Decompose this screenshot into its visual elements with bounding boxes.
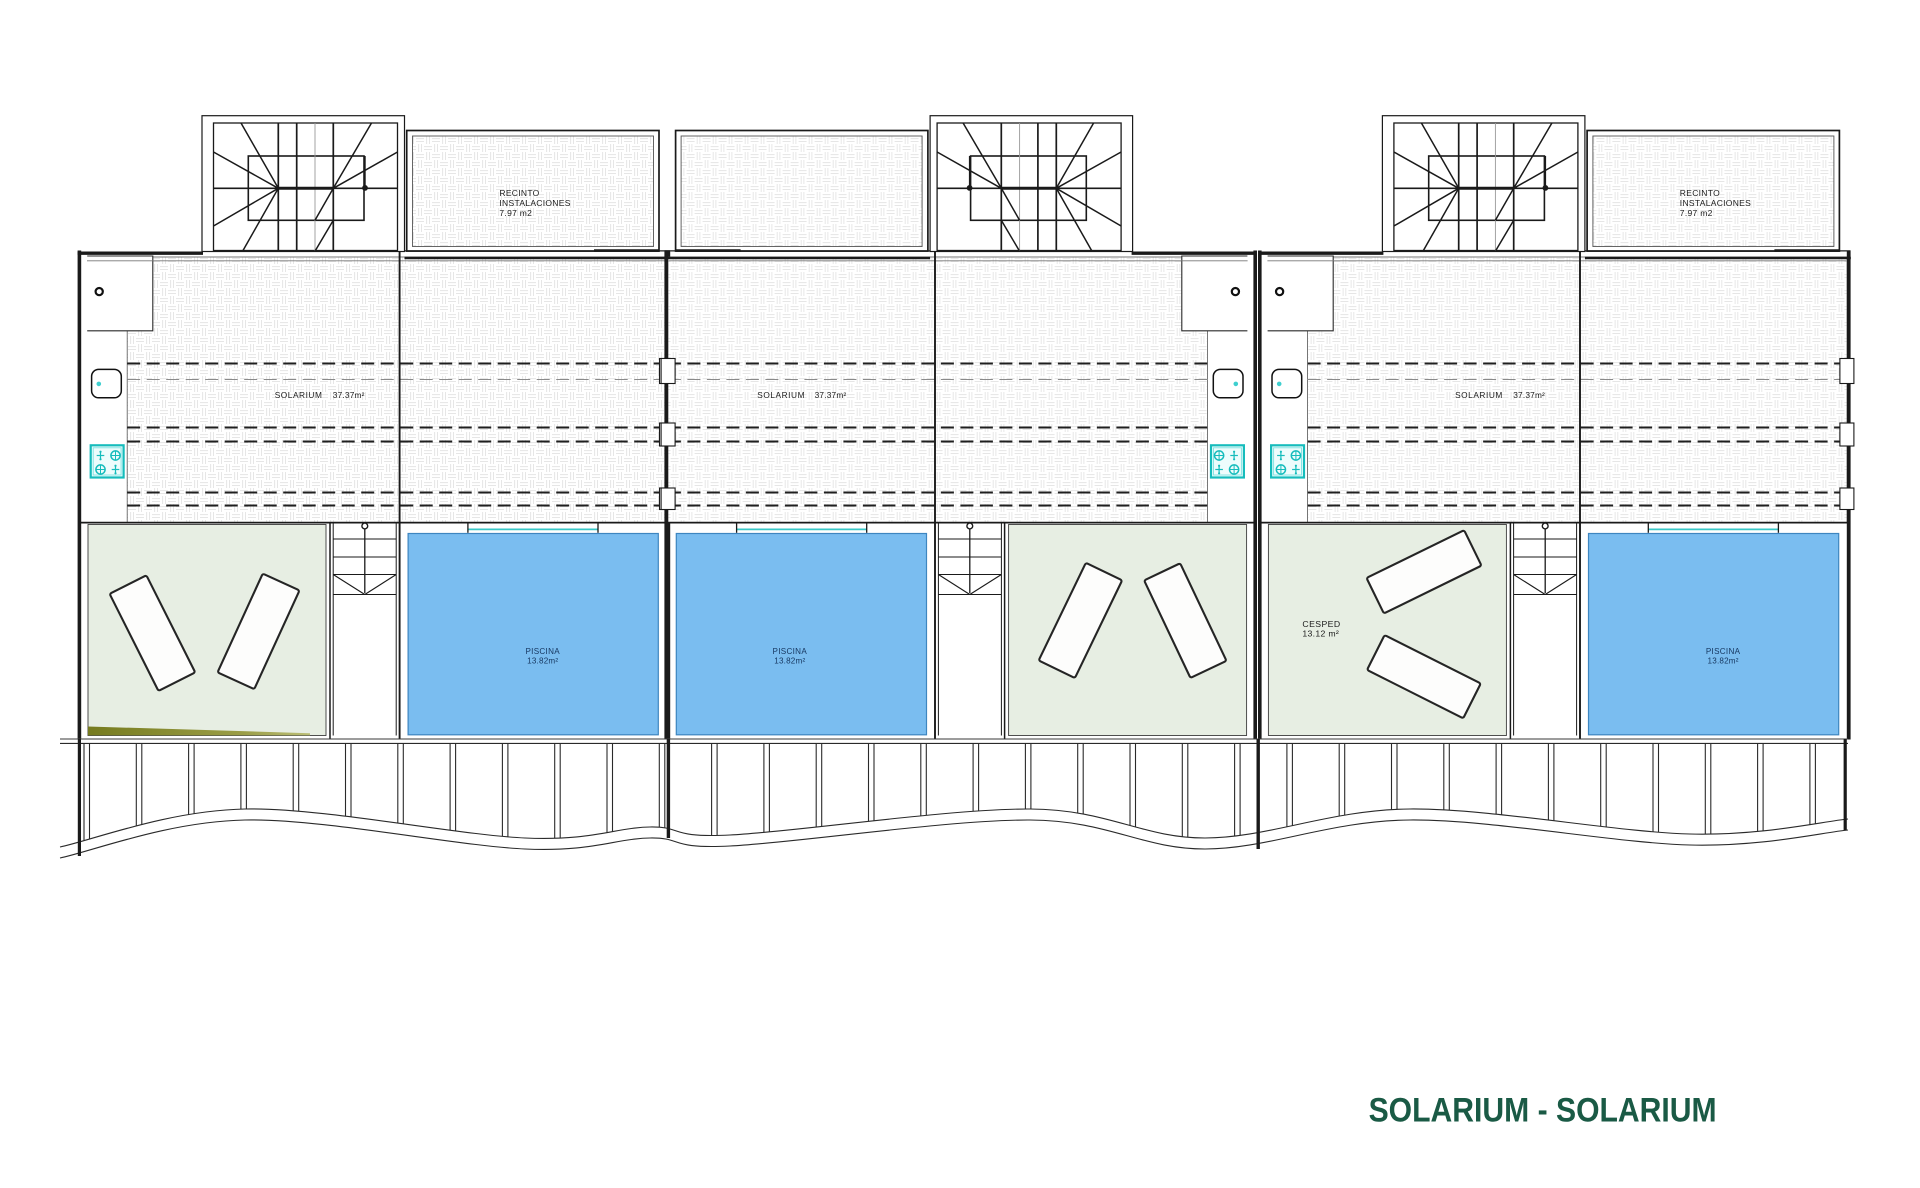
svg-text:SOLARIUM - SOLARIUM: SOLARIUM - SOLARIUM <box>1369 1092 1717 1130</box>
svg-text:13.82m²: 13.82m² <box>1708 656 1739 665</box>
svg-text:37.37m²: 37.37m² <box>815 390 847 400</box>
svg-text:7.97 m2: 7.97 m2 <box>499 208 532 218</box>
svg-text:13.12 m²: 13.12 m² <box>1302 629 1339 639</box>
svg-text:13.82m²: 13.82m² <box>527 656 558 665</box>
svg-text:PISCINA: PISCINA <box>1706 647 1741 656</box>
svg-text:PISCINA: PISCINA <box>773 647 808 656</box>
svg-text:RECINTO: RECINTO <box>499 188 539 198</box>
svg-text:SOLARIUM: SOLARIUM <box>1455 390 1503 400</box>
svg-text:PISCINA: PISCINA <box>525 647 560 656</box>
svg-text:INSTALACIONES: INSTALACIONES <box>1680 198 1751 208</box>
svg-text:RECINTO: RECINTO <box>1680 188 1720 198</box>
svg-text:SOLARIUM: SOLARIUM <box>757 390 805 400</box>
svg-text:SOLARIUM: SOLARIUM <box>275 390 323 400</box>
svg-text:13.82m²: 13.82m² <box>774 656 805 665</box>
svg-text:7.97 m2: 7.97 m2 <box>1680 208 1713 218</box>
svg-text:37.37m²: 37.37m² <box>1513 390 1545 400</box>
svg-text:CESPED: CESPED <box>1302 619 1340 629</box>
svg-text:37.37m²: 37.37m² <box>333 390 365 400</box>
svg-text:INSTALACIONES: INSTALACIONES <box>499 198 570 208</box>
